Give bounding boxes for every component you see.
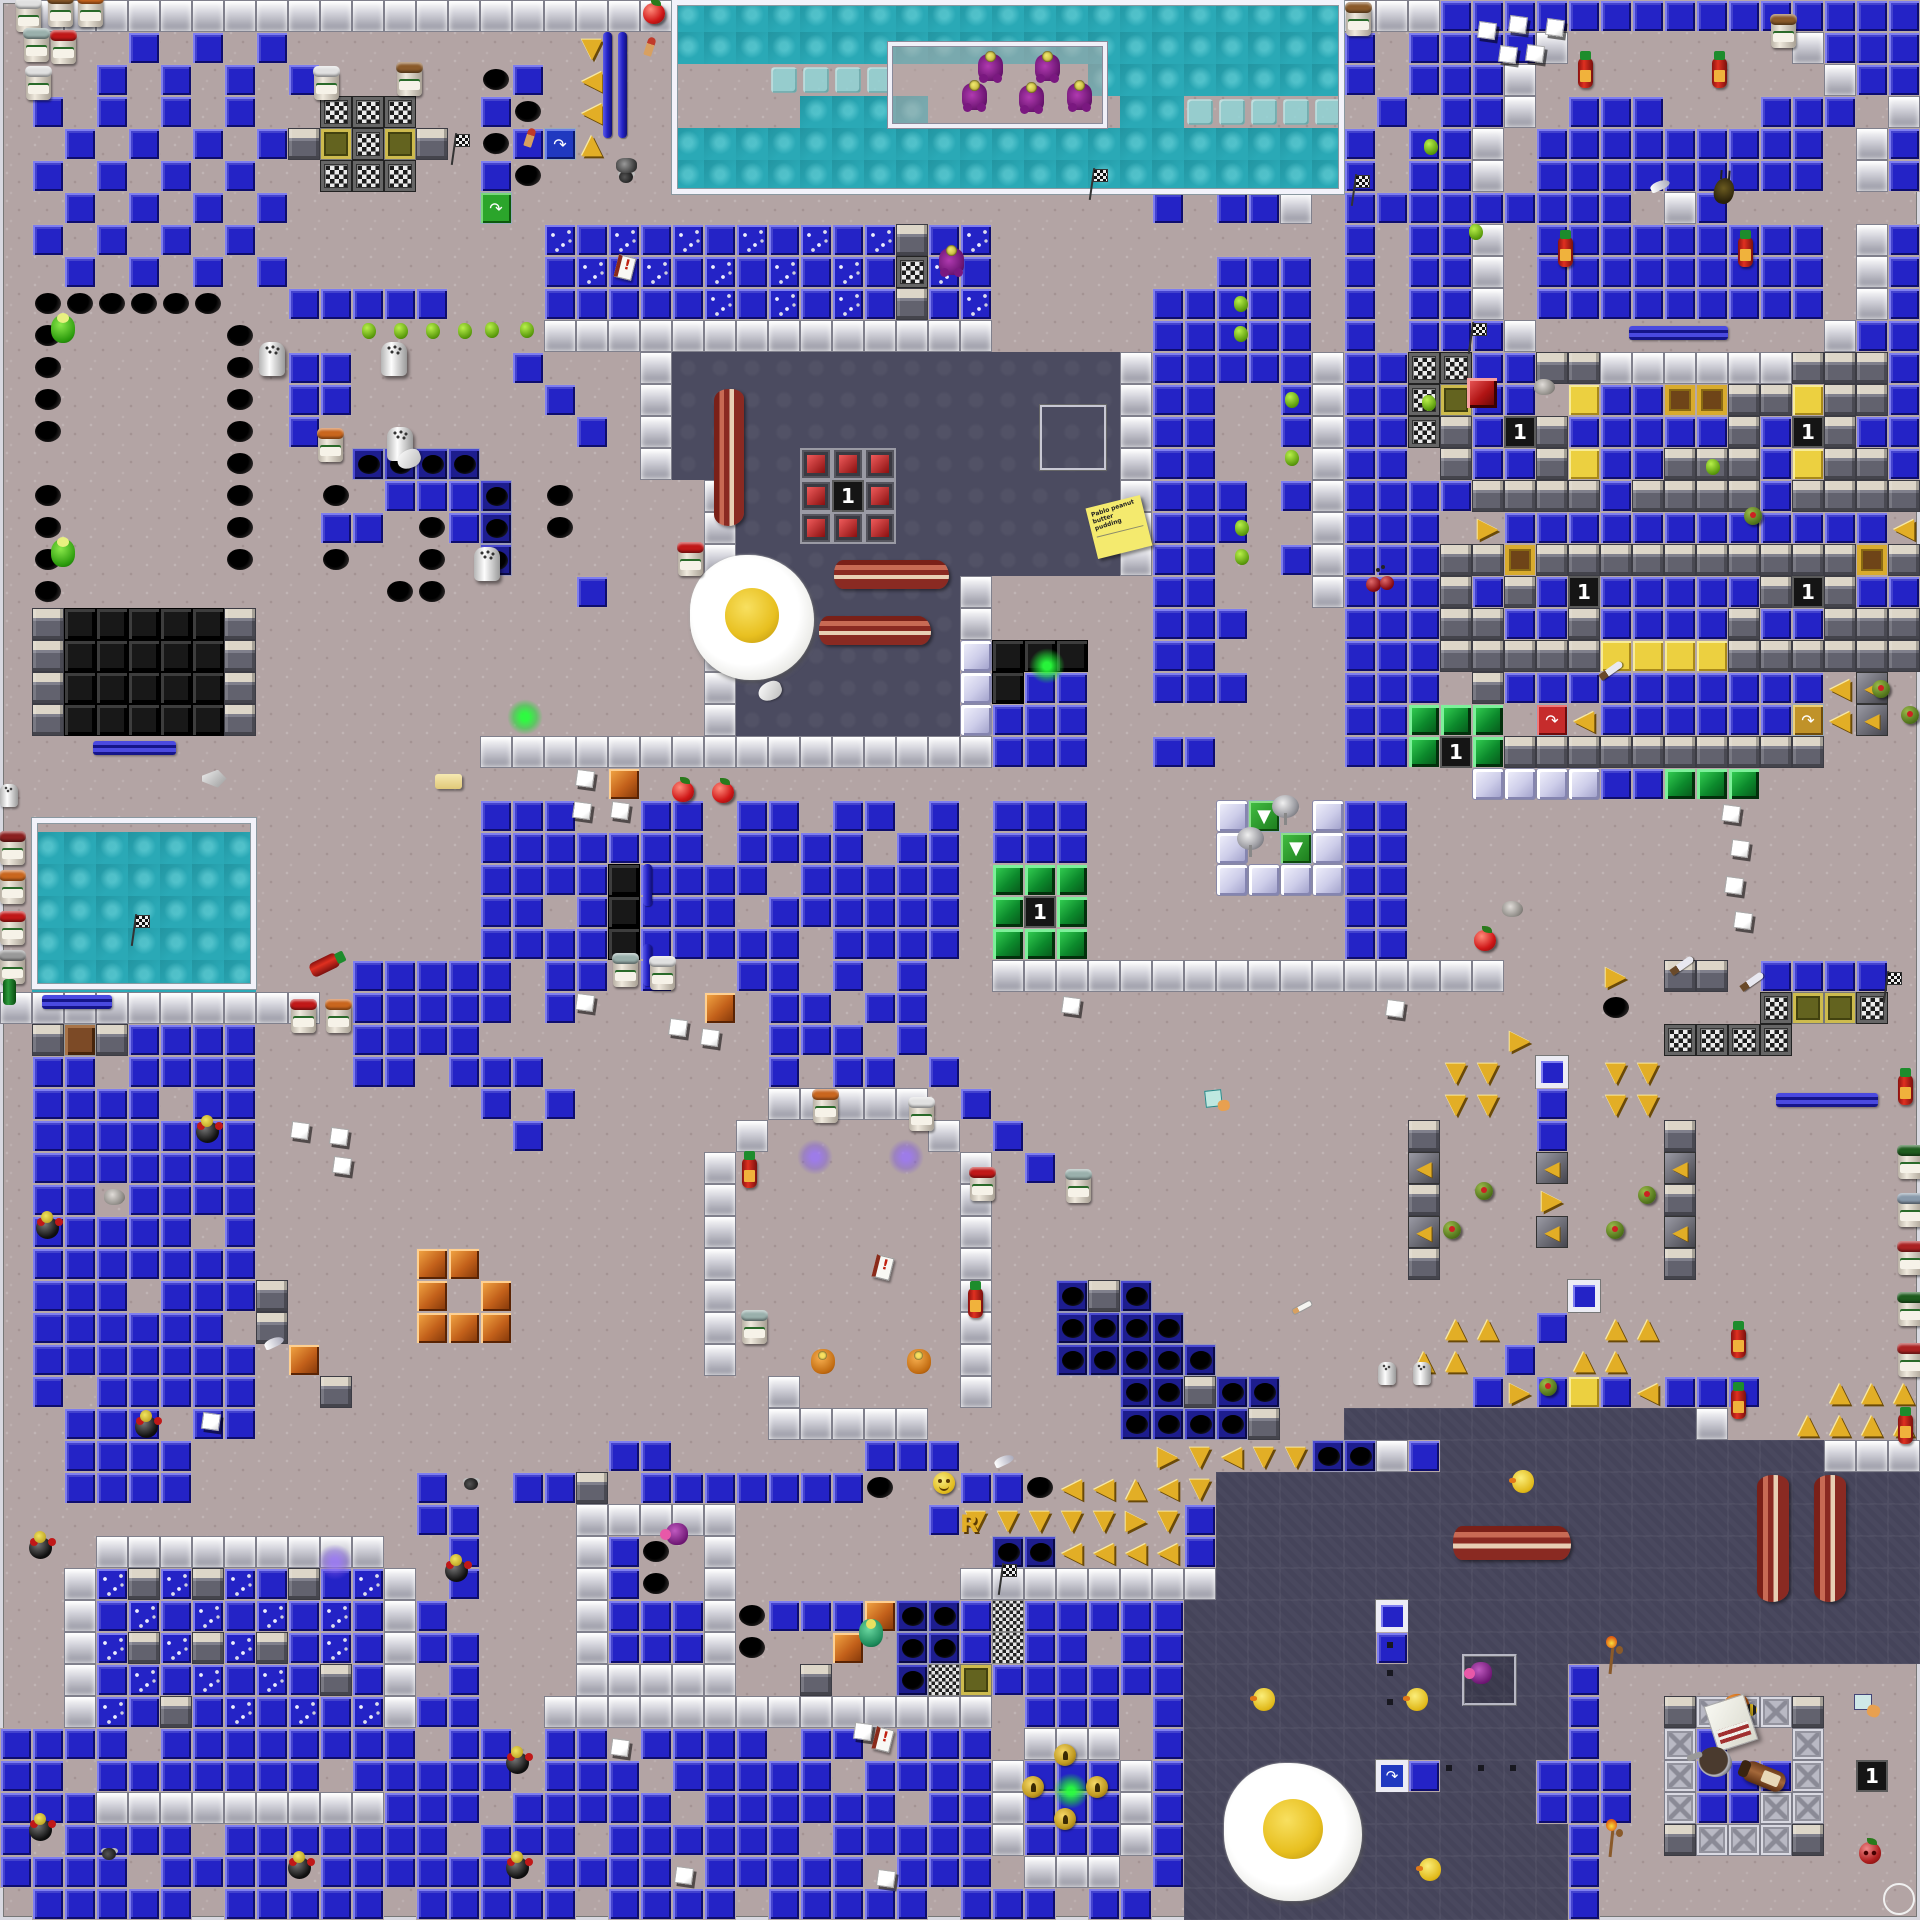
green-gem-tile[interactable] bbox=[1472, 736, 1504, 768]
blue-tile[interactable] bbox=[992, 704, 1024, 736]
blue-tile[interactable] bbox=[928, 1824, 960, 1856]
blue-tile[interactable] bbox=[1152, 1824, 1184, 1856]
checkered-crate[interactable] bbox=[320, 160, 352, 192]
blue-tile[interactable] bbox=[64, 1344, 96, 1376]
blue-tile[interactable] bbox=[992, 1120, 1024, 1152]
item-tabasco[interactable] bbox=[1578, 58, 1593, 88]
item-sugar[interactable] bbox=[575, 992, 595, 1011]
blue-tile[interactable] bbox=[1408, 512, 1440, 544]
blue-tile[interactable] bbox=[1888, 384, 1920, 416]
blue-tile[interactable] bbox=[1824, 512, 1856, 544]
steel-crate[interactable] bbox=[32, 704, 64, 736]
arrow-left-tile[interactable]: ◀ bbox=[1888, 512, 1920, 544]
blue-tile[interactable] bbox=[384, 1856, 416, 1888]
blue-tile[interactable] bbox=[640, 1792, 672, 1824]
arrow-right-tile[interactable]: ▶ bbox=[1504, 1024, 1536, 1056]
pit-hole[interactable] bbox=[224, 512, 256, 544]
blue-tile[interactable] bbox=[608, 1856, 640, 1888]
blue-tile[interactable] bbox=[1088, 1600, 1120, 1632]
steel-crate[interactable] bbox=[1792, 544, 1824, 576]
blue-tile[interactable] bbox=[1024, 704, 1056, 736]
blue-tile[interactable] bbox=[160, 1664, 192, 1696]
black-crate[interactable] bbox=[192, 672, 224, 704]
arrow-up-tile[interactable]: ▲ bbox=[1888, 1376, 1920, 1408]
item-jar[interactable] bbox=[1898, 1296, 1920, 1326]
steel-crate[interactable] bbox=[1440, 544, 1472, 576]
green-gem-tile[interactable] bbox=[1408, 704, 1440, 736]
blue-tile[interactable] bbox=[480, 1056, 512, 1088]
blue-tile[interactable] bbox=[320, 512, 352, 544]
blue-tile[interactable] bbox=[896, 960, 928, 992]
item-sugar[interactable] bbox=[610, 800, 630, 819]
blue-tile[interactable] bbox=[32, 1760, 64, 1792]
steel-crate[interactable] bbox=[1408, 1248, 1440, 1280]
blue-tile[interactable] bbox=[1664, 608, 1696, 640]
blue-tile[interactable] bbox=[416, 992, 448, 1024]
blue-tile[interactable] bbox=[1152, 288, 1184, 320]
blue-tile[interactable] bbox=[1184, 608, 1216, 640]
blue-tile[interactable] bbox=[352, 1760, 384, 1792]
pit-hole[interactable] bbox=[160, 288, 192, 320]
steel-crate[interactable] bbox=[1440, 608, 1472, 640]
blue-tile[interactable] bbox=[608, 288, 640, 320]
vat-tile[interactable] bbox=[896, 1600, 928, 1632]
steel-crate[interactable] bbox=[1248, 1408, 1280, 1440]
blue-tile[interactable] bbox=[352, 960, 384, 992]
blue-tile[interactable] bbox=[640, 1824, 672, 1856]
blue-tile[interactable] bbox=[288, 416, 320, 448]
item-lime[interactable] bbox=[1235, 520, 1249, 536]
item-tabasco[interactable] bbox=[968, 1288, 983, 1318]
item-chick[interactable] bbox=[1512, 1470, 1534, 1493]
gold-lock-tile[interactable] bbox=[1664, 384, 1696, 416]
blue-tile[interactable] bbox=[960, 1856, 992, 1888]
blue-tile[interactable] bbox=[1504, 672, 1536, 704]
blue-tile[interactable] bbox=[224, 1024, 256, 1056]
steel-crate[interactable] bbox=[1184, 1376, 1216, 1408]
item-jar[interactable] bbox=[909, 1101, 934, 1131]
blue-tile[interactable] bbox=[1152, 1632, 1184, 1664]
arrow-up-tile[interactable]: ▲ bbox=[1472, 1312, 1504, 1344]
blue-tile[interactable] bbox=[1504, 192, 1536, 224]
blue-tile[interactable] bbox=[128, 1696, 160, 1728]
blue-tile[interactable] bbox=[608, 1600, 640, 1632]
blue-tile[interactable] bbox=[1376, 640, 1408, 672]
blue-tile[interactable] bbox=[1376, 384, 1408, 416]
blue-tile[interactable] bbox=[1760, 704, 1792, 736]
blue-tile[interactable] bbox=[1376, 800, 1408, 832]
steel-crate[interactable] bbox=[1728, 736, 1760, 768]
item-jar[interactable] bbox=[1898, 1245, 1920, 1275]
steel-crate[interactable] bbox=[1792, 640, 1824, 672]
blue-tile[interactable] bbox=[608, 1536, 640, 1568]
blue-tile[interactable] bbox=[1184, 544, 1216, 576]
blue-tile[interactable] bbox=[1728, 288, 1760, 320]
blue-tile[interactable] bbox=[1376, 512, 1408, 544]
blue-tile[interactable] bbox=[1664, 128, 1696, 160]
item-lime[interactable] bbox=[520, 322, 534, 338]
blue-tile[interactable] bbox=[1568, 0, 1600, 32]
steel-crate[interactable] bbox=[1760, 384, 1792, 416]
blue-tile[interactable] bbox=[1376, 448, 1408, 480]
number-one-tile[interactable]: 1 bbox=[1568, 576, 1600, 608]
blue-tile[interactable] bbox=[768, 992, 800, 1024]
blue-tile[interactable] bbox=[256, 1696, 288, 1728]
crystal-tile[interactable] bbox=[1312, 800, 1344, 832]
blue-tile[interactable] bbox=[512, 800, 544, 832]
blue-tile[interactable] bbox=[576, 928, 608, 960]
blue-tile[interactable] bbox=[480, 96, 512, 128]
yellow-tile[interactable] bbox=[1696, 640, 1728, 672]
yellow-tile[interactable] bbox=[1664, 640, 1696, 672]
blue-tile[interactable] bbox=[1600, 768, 1632, 800]
steel-crate[interactable] bbox=[1856, 480, 1888, 512]
blue-tile[interactable] bbox=[1536, 576, 1568, 608]
pit-hole[interactable] bbox=[224, 480, 256, 512]
steel-crate[interactable] bbox=[1856, 352, 1888, 384]
steel-crate[interactable] bbox=[1536, 480, 1568, 512]
blue-tile[interactable] bbox=[160, 1344, 192, 1376]
blue-tile[interactable] bbox=[1472, 576, 1504, 608]
blue-tile[interactable] bbox=[1600, 608, 1632, 640]
blue-tile[interactable] bbox=[64, 192, 96, 224]
blue-tile[interactable] bbox=[160, 1120, 192, 1152]
steel-crate[interactable] bbox=[1664, 1120, 1696, 1152]
blue-tile[interactable] bbox=[640, 1440, 672, 1472]
green-gem-tile[interactable] bbox=[1056, 928, 1088, 960]
blue-tile[interactable] bbox=[416, 1696, 448, 1728]
blue-tile[interactable] bbox=[160, 1600, 192, 1632]
spike-tile[interactable] bbox=[704, 288, 736, 320]
blue-tile[interactable] bbox=[64, 128, 96, 160]
copper-tile[interactable] bbox=[288, 1344, 320, 1376]
blue-tile[interactable] bbox=[96, 160, 128, 192]
black-crate[interactable] bbox=[64, 608, 96, 640]
blue-tile[interactable] bbox=[544, 1472, 576, 1504]
blue-tile[interactable] bbox=[224, 1888, 256, 1920]
blue-tile[interactable] bbox=[352, 1600, 384, 1632]
blue-tile[interactable] bbox=[1568, 128, 1600, 160]
item-jar[interactable] bbox=[1898, 1347, 1920, 1377]
arrow-down-tile[interactable]: ▼ bbox=[1440, 1088, 1472, 1120]
blue-tile[interactable] bbox=[192, 192, 224, 224]
arrow-down-tile[interactable]: ▼ bbox=[1280, 1440, 1312, 1472]
blue-tile[interactable] bbox=[0, 1728, 32, 1760]
blue-tile[interactable] bbox=[768, 1056, 800, 1088]
blue-tile[interactable] bbox=[1792, 96, 1824, 128]
black-crate[interactable] bbox=[128, 608, 160, 640]
blue-tile[interactable] bbox=[1792, 0, 1824, 32]
blue-tile[interactable] bbox=[480, 832, 512, 864]
steel-crate[interactable] bbox=[1088, 1280, 1120, 1312]
blue-tile[interactable] bbox=[128, 128, 160, 160]
black-crate[interactable] bbox=[96, 672, 128, 704]
blue-tile[interactable] bbox=[448, 1696, 480, 1728]
item-jar[interactable] bbox=[26, 70, 51, 100]
blue-tile[interactable] bbox=[1472, 448, 1504, 480]
blue-tile[interactable] bbox=[1152, 640, 1184, 672]
blue-tile[interactable] bbox=[672, 1472, 704, 1504]
blue-tile[interactable] bbox=[1152, 352, 1184, 384]
item-egg[interactable] bbox=[1224, 1763, 1362, 1901]
blue-tile[interactable] bbox=[160, 96, 192, 128]
black-crate[interactable] bbox=[608, 864, 640, 896]
checkered-crate[interactable] bbox=[1408, 416, 1440, 448]
blue-tile[interactable] bbox=[1056, 1696, 1088, 1728]
steel-crate[interactable] bbox=[1824, 448, 1856, 480]
crystal-tile[interactable] bbox=[1280, 864, 1312, 896]
blue-tile[interactable] bbox=[1152, 512, 1184, 544]
steel-crate[interactable] bbox=[1632, 736, 1664, 768]
blue-tile[interactable] bbox=[256, 256, 288, 288]
blue-tile[interactable] bbox=[64, 1152, 96, 1184]
blue-tile[interactable] bbox=[64, 1248, 96, 1280]
item-tabasco[interactable] bbox=[1731, 1328, 1746, 1358]
blue-tile[interactable] bbox=[352, 512, 384, 544]
blue-tile[interactable] bbox=[800, 288, 832, 320]
item-greenalien[interactable] bbox=[859, 1619, 883, 1647]
blue-tile[interactable] bbox=[768, 832, 800, 864]
pit-hole[interactable] bbox=[224, 544, 256, 576]
item-vbar[interactable] bbox=[643, 864, 652, 906]
blue-tile[interactable] bbox=[1152, 608, 1184, 640]
blue-tile[interactable] bbox=[256, 1856, 288, 1888]
blue-tile[interactable] bbox=[64, 1824, 96, 1856]
blue-tile[interactable] bbox=[1632, 768, 1664, 800]
vat-tile[interactable] bbox=[1152, 1376, 1184, 1408]
blue-tile[interactable] bbox=[640, 1600, 672, 1632]
item-letterR[interactable]: R bbox=[960, 1510, 978, 1538]
blue-tile[interactable] bbox=[224, 1152, 256, 1184]
item-jar[interactable] bbox=[970, 1171, 995, 1201]
blue-tile[interactable] bbox=[320, 1856, 352, 1888]
blue-tile[interactable] bbox=[352, 1728, 384, 1760]
blue-tile[interactable] bbox=[416, 960, 448, 992]
blue-tile[interactable] bbox=[1568, 288, 1600, 320]
blue-tile[interactable] bbox=[96, 1120, 128, 1152]
blue-tile[interactable] bbox=[544, 864, 576, 896]
blue-tile[interactable] bbox=[160, 1280, 192, 1312]
blue-tile[interactable] bbox=[352, 992, 384, 1024]
blue-tile[interactable] bbox=[32, 160, 64, 192]
blue-tile[interactable] bbox=[352, 288, 384, 320]
item-jar[interactable] bbox=[318, 432, 343, 462]
blue-tile[interactable] bbox=[832, 864, 864, 896]
blue-tile[interactable] bbox=[576, 288, 608, 320]
blue-tile[interactable] bbox=[1792, 128, 1824, 160]
blue-tile[interactable] bbox=[416, 480, 448, 512]
blue-tile[interactable] bbox=[1248, 288, 1280, 320]
item-frog[interactable] bbox=[51, 539, 75, 567]
blue-tile[interactable] bbox=[1184, 1536, 1216, 1568]
checkered-crate[interactable] bbox=[352, 96, 384, 128]
item-lime[interactable] bbox=[1234, 296, 1248, 312]
blue-tile[interactable] bbox=[384, 1792, 416, 1824]
blue-tile[interactable] bbox=[1504, 608, 1536, 640]
blue-tile[interactable] bbox=[1184, 352, 1216, 384]
blue-tile[interactable] bbox=[448, 1888, 480, 1920]
spike-tile[interactable] bbox=[736, 224, 768, 256]
blue-tile[interactable] bbox=[256, 192, 288, 224]
blue-tile[interactable] bbox=[864, 1760, 896, 1792]
item-purplemini[interactable] bbox=[666, 1523, 688, 1545]
steel-crate[interactable] bbox=[288, 1568, 320, 1600]
blue-tile[interactable] bbox=[32, 1120, 64, 1152]
blue-tile[interactable] bbox=[1760, 960, 1792, 992]
blue-tile[interactable] bbox=[1696, 512, 1728, 544]
blue-tile[interactable] bbox=[128, 1216, 160, 1248]
blue-tile[interactable] bbox=[384, 480, 416, 512]
blue-tile[interactable] bbox=[928, 1056, 960, 1088]
arrow-down-tile[interactable]: ▼ bbox=[1184, 1472, 1216, 1504]
blue-tile[interactable] bbox=[64, 1312, 96, 1344]
blue-tile[interactable] bbox=[800, 832, 832, 864]
blue-tile[interactable] bbox=[576, 1728, 608, 1760]
blue-tile[interactable] bbox=[448, 512, 480, 544]
blue-tile[interactable] bbox=[96, 1440, 128, 1472]
blue-tile[interactable] bbox=[1056, 736, 1088, 768]
item-olive[interactable] bbox=[1872, 680, 1890, 698]
vat-tile[interactable] bbox=[896, 1632, 928, 1664]
blue-tile[interactable] bbox=[928, 1440, 960, 1472]
blue-tile[interactable] bbox=[1792, 256, 1824, 288]
item-skulltomato[interactable] bbox=[1859, 1842, 1881, 1864]
diamond-arrow-tile[interactable]: ◀ bbox=[1664, 1152, 1696, 1184]
blue-tile[interactable] bbox=[1856, 32, 1888, 64]
blue-tile[interactable] bbox=[1664, 512, 1696, 544]
door-tile[interactable] bbox=[64, 1024, 96, 1056]
blue-tile[interactable] bbox=[544, 832, 576, 864]
blue-tile[interactable] bbox=[416, 1792, 448, 1824]
item-jar[interactable] bbox=[742, 1314, 767, 1344]
blue-tile[interactable] bbox=[160, 1312, 192, 1344]
blue-tile[interactable] bbox=[672, 864, 704, 896]
blue-tile[interactable] bbox=[1184, 512, 1216, 544]
blue-tile[interactable] bbox=[672, 1600, 704, 1632]
blue-tile[interactable] bbox=[736, 1728, 768, 1760]
blue-tile[interactable] bbox=[224, 96, 256, 128]
blue-tile[interactable] bbox=[1152, 1600, 1184, 1632]
pit-hole[interactable] bbox=[32, 416, 64, 448]
arrow-down-tile[interactable]: ▼ bbox=[992, 1504, 1024, 1536]
blue-tile[interactable] bbox=[384, 1824, 416, 1856]
item-bomber[interactable] bbox=[194, 1115, 220, 1143]
item-jar[interactable] bbox=[0, 874, 25, 904]
black-crate[interactable] bbox=[96, 608, 128, 640]
blue-tile[interactable] bbox=[1376, 896, 1408, 928]
red-button-tile[interactable] bbox=[832, 448, 864, 480]
steel-crate[interactable] bbox=[1536, 544, 1568, 576]
arrow-left-tile[interactable]: ◀ bbox=[1632, 1376, 1664, 1408]
spike-tile[interactable] bbox=[352, 1568, 384, 1600]
blue-tile[interactable] bbox=[544, 1728, 576, 1760]
steel-crate[interactable] bbox=[1664, 736, 1696, 768]
blue-tile[interactable] bbox=[1472, 1376, 1504, 1408]
item-sugar[interactable] bbox=[1730, 839, 1750, 858]
blue-tile[interactable] bbox=[608, 1888, 640, 1920]
item-lime[interactable] bbox=[1235, 549, 1249, 565]
blue-tile[interactable] bbox=[1728, 672, 1760, 704]
checker-tile[interactable] bbox=[992, 1600, 1024, 1632]
blue-tile[interactable] bbox=[1888, 320, 1920, 352]
blue-tile[interactable] bbox=[416, 1600, 448, 1632]
blue-tile[interactable] bbox=[512, 1888, 544, 1920]
steel-crate[interactable] bbox=[1632, 480, 1664, 512]
blue-tile[interactable] bbox=[800, 896, 832, 928]
blue-tile[interactable] bbox=[1408, 192, 1440, 224]
item-megaphone[interactable] bbox=[202, 770, 227, 788]
vat-tile[interactable] bbox=[1120, 1312, 1152, 1344]
black-crate[interactable] bbox=[64, 640, 96, 672]
blue-tile[interactable] bbox=[1888, 576, 1920, 608]
black-crate[interactable] bbox=[608, 896, 640, 928]
vat-tile[interactable] bbox=[1152, 1408, 1184, 1440]
blue-tile[interactable] bbox=[384, 992, 416, 1024]
item-jar[interactable] bbox=[78, 0, 103, 27]
blue-tile[interactable] bbox=[1568, 1664, 1600, 1696]
blue-tile[interactable] bbox=[384, 288, 416, 320]
blue-tile[interactable] bbox=[448, 1856, 480, 1888]
blue-tile[interactable] bbox=[512, 352, 544, 384]
blue-tile[interactable] bbox=[1824, 96, 1856, 128]
blue-tile[interactable] bbox=[288, 1664, 320, 1696]
item-redgem[interactable] bbox=[1467, 378, 1497, 408]
arrow-up-tile[interactable]: ▲ bbox=[1440, 1344, 1472, 1376]
item-bomber[interactable] bbox=[504, 1746, 530, 1774]
blue-tile[interactable] bbox=[448, 1024, 480, 1056]
blue-tile[interactable] bbox=[320, 288, 352, 320]
item-fly[interactable] bbox=[464, 1478, 478, 1490]
crystal-tile[interactable] bbox=[1312, 832, 1344, 864]
blue-tile[interactable] bbox=[1472, 64, 1504, 96]
pit-hole[interactable] bbox=[96, 288, 128, 320]
blue-tile[interactable] bbox=[1280, 480, 1312, 512]
blue-tile[interactable] bbox=[128, 1312, 160, 1344]
blue-tile[interactable] bbox=[1568, 1856, 1600, 1888]
blue-tile[interactable] bbox=[256, 1760, 288, 1792]
arrow-left-tile[interactable]: ◀ bbox=[1216, 1440, 1248, 1472]
blue-tile[interactable] bbox=[1344, 928, 1376, 960]
blue-tile[interactable] bbox=[1376, 192, 1408, 224]
blue-tile[interactable] bbox=[352, 1632, 384, 1664]
blue-tile[interactable] bbox=[96, 1888, 128, 1920]
item-lime[interactable] bbox=[1424, 139, 1438, 155]
arrow-right-tile[interactable]: ▶ bbox=[1504, 1376, 1536, 1408]
blue-tile[interactable] bbox=[192, 128, 224, 160]
blue-tile[interactable] bbox=[1440, 480, 1472, 512]
blue-tile[interactable] bbox=[1600, 448, 1632, 480]
crystal-tile[interactable] bbox=[960, 704, 992, 736]
blue-tile[interactable] bbox=[544, 1824, 576, 1856]
blue-tile[interactable] bbox=[320, 1728, 352, 1760]
blue-tile[interactable] bbox=[1696, 608, 1728, 640]
blue-tile[interactable] bbox=[672, 896, 704, 928]
blue-tile[interactable] bbox=[736, 864, 768, 896]
blue-tile[interactable] bbox=[1184, 480, 1216, 512]
diamond-arrow-tile[interactable]: ◀ bbox=[1664, 1216, 1696, 1248]
blue-tile[interactable] bbox=[640, 1856, 672, 1888]
blue-tile[interactable] bbox=[224, 1216, 256, 1248]
blue-tile[interactable] bbox=[1632, 96, 1664, 128]
bounce-tile-green[interactable]: ↷ bbox=[480, 192, 512, 224]
number-one-tile[interactable]: 1 bbox=[1440, 736, 1472, 768]
spike-tile[interactable] bbox=[288, 1696, 320, 1728]
blue-tile[interactable] bbox=[1696, 1376, 1728, 1408]
item-sugar[interactable] bbox=[1508, 15, 1528, 34]
blue-tile[interactable] bbox=[704, 1888, 736, 1920]
blue-tile[interactable] bbox=[1632, 672, 1664, 704]
vat-tile[interactable] bbox=[1344, 1440, 1376, 1472]
